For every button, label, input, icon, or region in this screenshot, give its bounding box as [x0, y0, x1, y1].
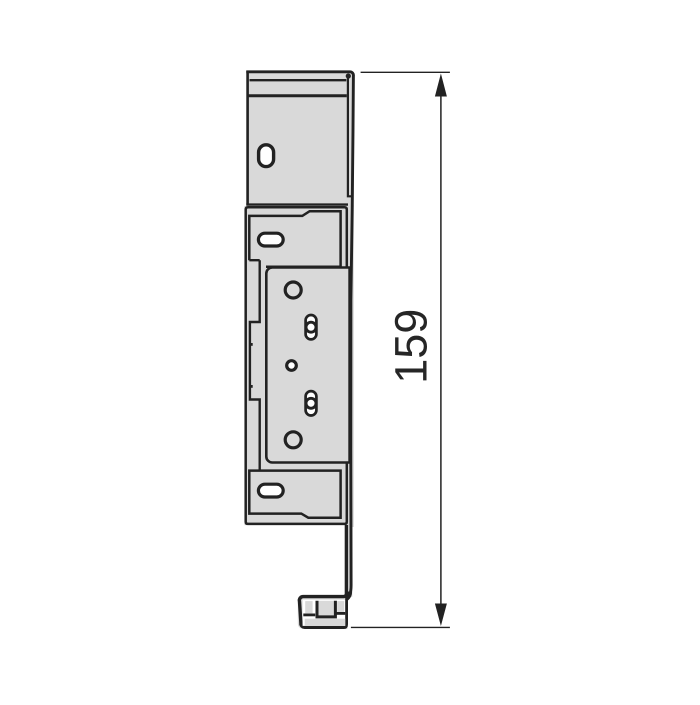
svg-text:159: 159 — [386, 309, 437, 384]
